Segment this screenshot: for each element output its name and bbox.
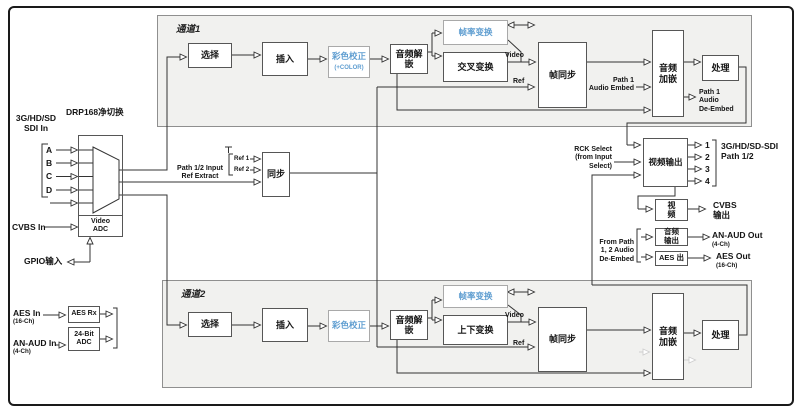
router-title: DRP168净切换 [66, 107, 138, 117]
ref1-label: Ref 1 [234, 155, 249, 162]
aes-out-sub: (16-Ch) [716, 262, 737, 269]
ch1-frame-rate-box: 帧率变换 [443, 20, 508, 45]
aes-in-label: AES In [13, 308, 40, 318]
ch2-color-correct-box: 彩色校正 [328, 310, 370, 342]
ch1-process-box: 处理 [702, 55, 739, 81]
input-router-box: Video ADC [78, 135, 123, 237]
sdi-out-label: 3G/HD/SD-SDI Path 1/2 [721, 141, 778, 161]
ch1-audio-embed-box: 音频 加嵌 [652, 30, 684, 117]
an-aud-out-sub: (4-Ch) [712, 241, 730, 248]
ch2-select-box: 选择 [188, 312, 232, 337]
sync-box: 同步 [262, 152, 290, 197]
sdi-port-4: 4 [705, 176, 710, 186]
sdi-port-2: 2 [705, 152, 710, 162]
sdi-in-label: 3G/HD/SD SDI In [8, 113, 64, 133]
ch1-frame-sync-box: 帧同步 [538, 42, 587, 108]
gpio-in-label: GPIO输入 [24, 256, 62, 266]
aes-out-label: AES Out [716, 251, 750, 261]
aes-in-sub: (16-Ch) [13, 318, 34, 325]
sdi-b-label: B [46, 158, 52, 168]
channel2-title: 通道2 [181, 286, 205, 300]
sdi-d-label: D [46, 185, 52, 195]
ch1-cross-conv-box: 交叉变换 [443, 52, 508, 82]
cvbs-out-label: CVBS 输出 [713, 200, 737, 220]
cvbs-in-label: CVBS In [12, 222, 46, 232]
video-dac-box: 视 频 [655, 199, 688, 221]
ref-extract-label: Path 1/2 Input Ref Extract [168, 165, 232, 182]
ch2-frame-rate-label: 帧率变换 [458, 292, 492, 302]
an-aud-out-label: AN-AUD Out [712, 230, 763, 240]
channel1-title: 通道1 [176, 21, 200, 35]
ch1-ref-label: Ref [513, 78, 524, 86]
video-out-box: 视频输出 [643, 138, 688, 187]
ch1-deembed-out-label: Path 1 Audio De-Embed [699, 89, 749, 114]
ch2-frame-rate-box: 帧率变换 [443, 285, 508, 308]
sdi-a-label: A [46, 145, 52, 155]
ch2-video-label: Video [505, 312, 524, 320]
video-adc-section: Video ADC [79, 215, 122, 236]
sdi-c-label: C [46, 171, 52, 181]
ch1-insert-box: 插入 [262, 42, 308, 76]
ch2-process-box: 处理 [702, 320, 739, 350]
ch1-frame-rate-label: 帧率变换 [458, 28, 492, 38]
aes-out-box: AES 出 [655, 251, 688, 266]
aes-rx-box: AES Rx [68, 306, 100, 323]
ch2-audio-embed-box: 音频 加嵌 [652, 293, 684, 380]
ch2-audio-deembed-box: 音频解 嵌 [390, 310, 428, 340]
ch2-frame-sync-box: 帧同步 [538, 307, 587, 372]
ch1-video-label: Video [505, 52, 524, 60]
ch1-color-correct-label: 彩色校正 [332, 52, 366, 62]
audio-out-box: 音频 输出 [655, 228, 688, 246]
ch2-insert-box: 插入 [262, 308, 308, 342]
ref2-label: Ref 2 [234, 166, 249, 173]
ch2-ref-label: Ref [513, 340, 524, 348]
sdi-port-1: 1 [705, 140, 710, 150]
ch2-color-correct-label: 彩色校正 [332, 321, 366, 331]
ch2-updown-conv-box: 上下变换 [443, 315, 508, 345]
adc-24bit-box: 24-Bit ADC [68, 327, 100, 351]
an-aud-in-sub: (4-Ch) [13, 348, 31, 355]
ch1-select-box: 选择 [188, 43, 232, 68]
ch1-color-sub-label: (+COLOR) [334, 65, 363, 72]
sdi-port-3: 3 [705, 164, 710, 174]
ch1-color-correct-box: 彩色校正 (+COLOR) [328, 46, 370, 78]
ch1-audio-deembed-box: 音频解 嵌 [390, 44, 428, 74]
rck-select-label: RCK Select (from Input Select) [552, 146, 612, 171]
block-diagram: 3G/HD/SD SDI In A B C D CVBS In GPIO输入 D… [0, 0, 800, 410]
an-aud-in-label: AN-AUD In [13, 338, 56, 348]
from-path-label: From Path 1, 2 Audio De-Embed [590, 239, 634, 264]
ch1-embed-in-label: Path 1 Audio Embed [588, 77, 634, 94]
